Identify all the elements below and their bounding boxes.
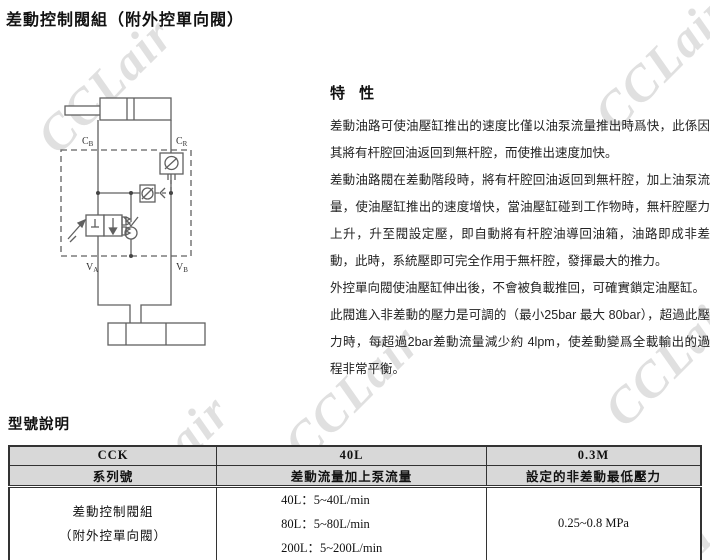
feature-paragraph: 差動油路可使油壓缸推出的速度比僅以油泵流量推出時爲快，此係因其將有杆腔回油返回到…	[330, 113, 710, 167]
header-cell-flow-code: 40L	[217, 446, 487, 465]
table-body-row: 差動控制閥組 （附外控單向閥） 40L：5~40L/min 80L：5~80L/…	[9, 486, 701, 560]
feature-paragraph: 差動油路閥在差動階段時，將有杆腔回油返回到無杆腔，加上油泵流量，使油壓缸推出的速…	[330, 167, 710, 275]
port-label-cb: CB	[82, 136, 94, 148]
header-cell-pressure-label: 設定的非差動最低壓力	[486, 465, 701, 486]
check-valve-center	[140, 185, 155, 202]
header-cell-series-label: 系列號	[9, 465, 217, 486]
hydraulic-circuit-diagram: CB CR VA VB	[56, 86, 218, 362]
port-label-vb: VB	[176, 262, 188, 274]
table-header-row-1: CCK 40L 0.3M	[9, 446, 701, 465]
header-cell-flow-label: 差動流量加上泵流量	[217, 465, 487, 486]
cell-valve-name: 差動控制閥組 （附外控單向閥）	[9, 486, 217, 560]
feature-paragraph: 此閥進入非差動的壓力是可調的（最小25bar 最大 80bar），超過此壓力時，…	[330, 302, 710, 383]
cell-flow-options: 40L：5~40L/min 80L：5~80L/min 200L：5~200L/…	[217, 486, 487, 560]
features-heading: 特 性	[330, 82, 710, 103]
cylinder-symbol	[65, 98, 171, 120]
table-header-row-2: 系列號 差動流量加上泵流量 設定的非差動最低壓力	[9, 465, 701, 486]
model-heading: 型號說明	[8, 413, 70, 434]
directional-valve-block	[108, 323, 205, 345]
feature-paragraph: 外控單向閥使油壓缸伸出後，不會被負載推回，可確實鎖定油壓缸。	[330, 275, 710, 302]
features-section: 特 性 差動油路可使油壓缸推出的速度比僅以油泵流量推出時爲快，此係因其將有杆腔回…	[330, 82, 710, 383]
features-paragraphs: 差動油路可使油壓缸推出的速度比僅以油泵流量推出時爲快，此係因其將有杆腔回油返回到…	[330, 113, 710, 383]
header-cell-series-code: CCK	[9, 446, 217, 465]
valve-name-line1: 差動控制閥組	[10, 500, 216, 524]
differential-control-valve	[68, 215, 130, 242]
flow-option: 40L：5~40L/min	[281, 488, 486, 512]
cell-pressure-range: 0.25~0.8 MPa	[486, 486, 701, 560]
port-label-va: VA	[86, 262, 98, 274]
catalog-page: CCLair CCLair CCLair CCLair CCLair CCLai…	[0, 0, 710, 560]
flow-option: 80L：5~80L/min	[281, 512, 486, 536]
header-cell-pressure-code: 0.3M	[486, 446, 701, 465]
port-label-cr: CR	[176, 136, 188, 148]
page-title: 差動控制閥組（附外控單向閥）	[6, 6, 244, 30]
model-spec-table: CCK 40L 0.3M 系列號 差動流量加上泵流量 設定的非差動最低壓力 差動…	[8, 445, 702, 560]
flow-option: 200L：5~200L/min	[281, 536, 486, 560]
valve-name-line2: （附外控單向閥）	[10, 524, 216, 548]
